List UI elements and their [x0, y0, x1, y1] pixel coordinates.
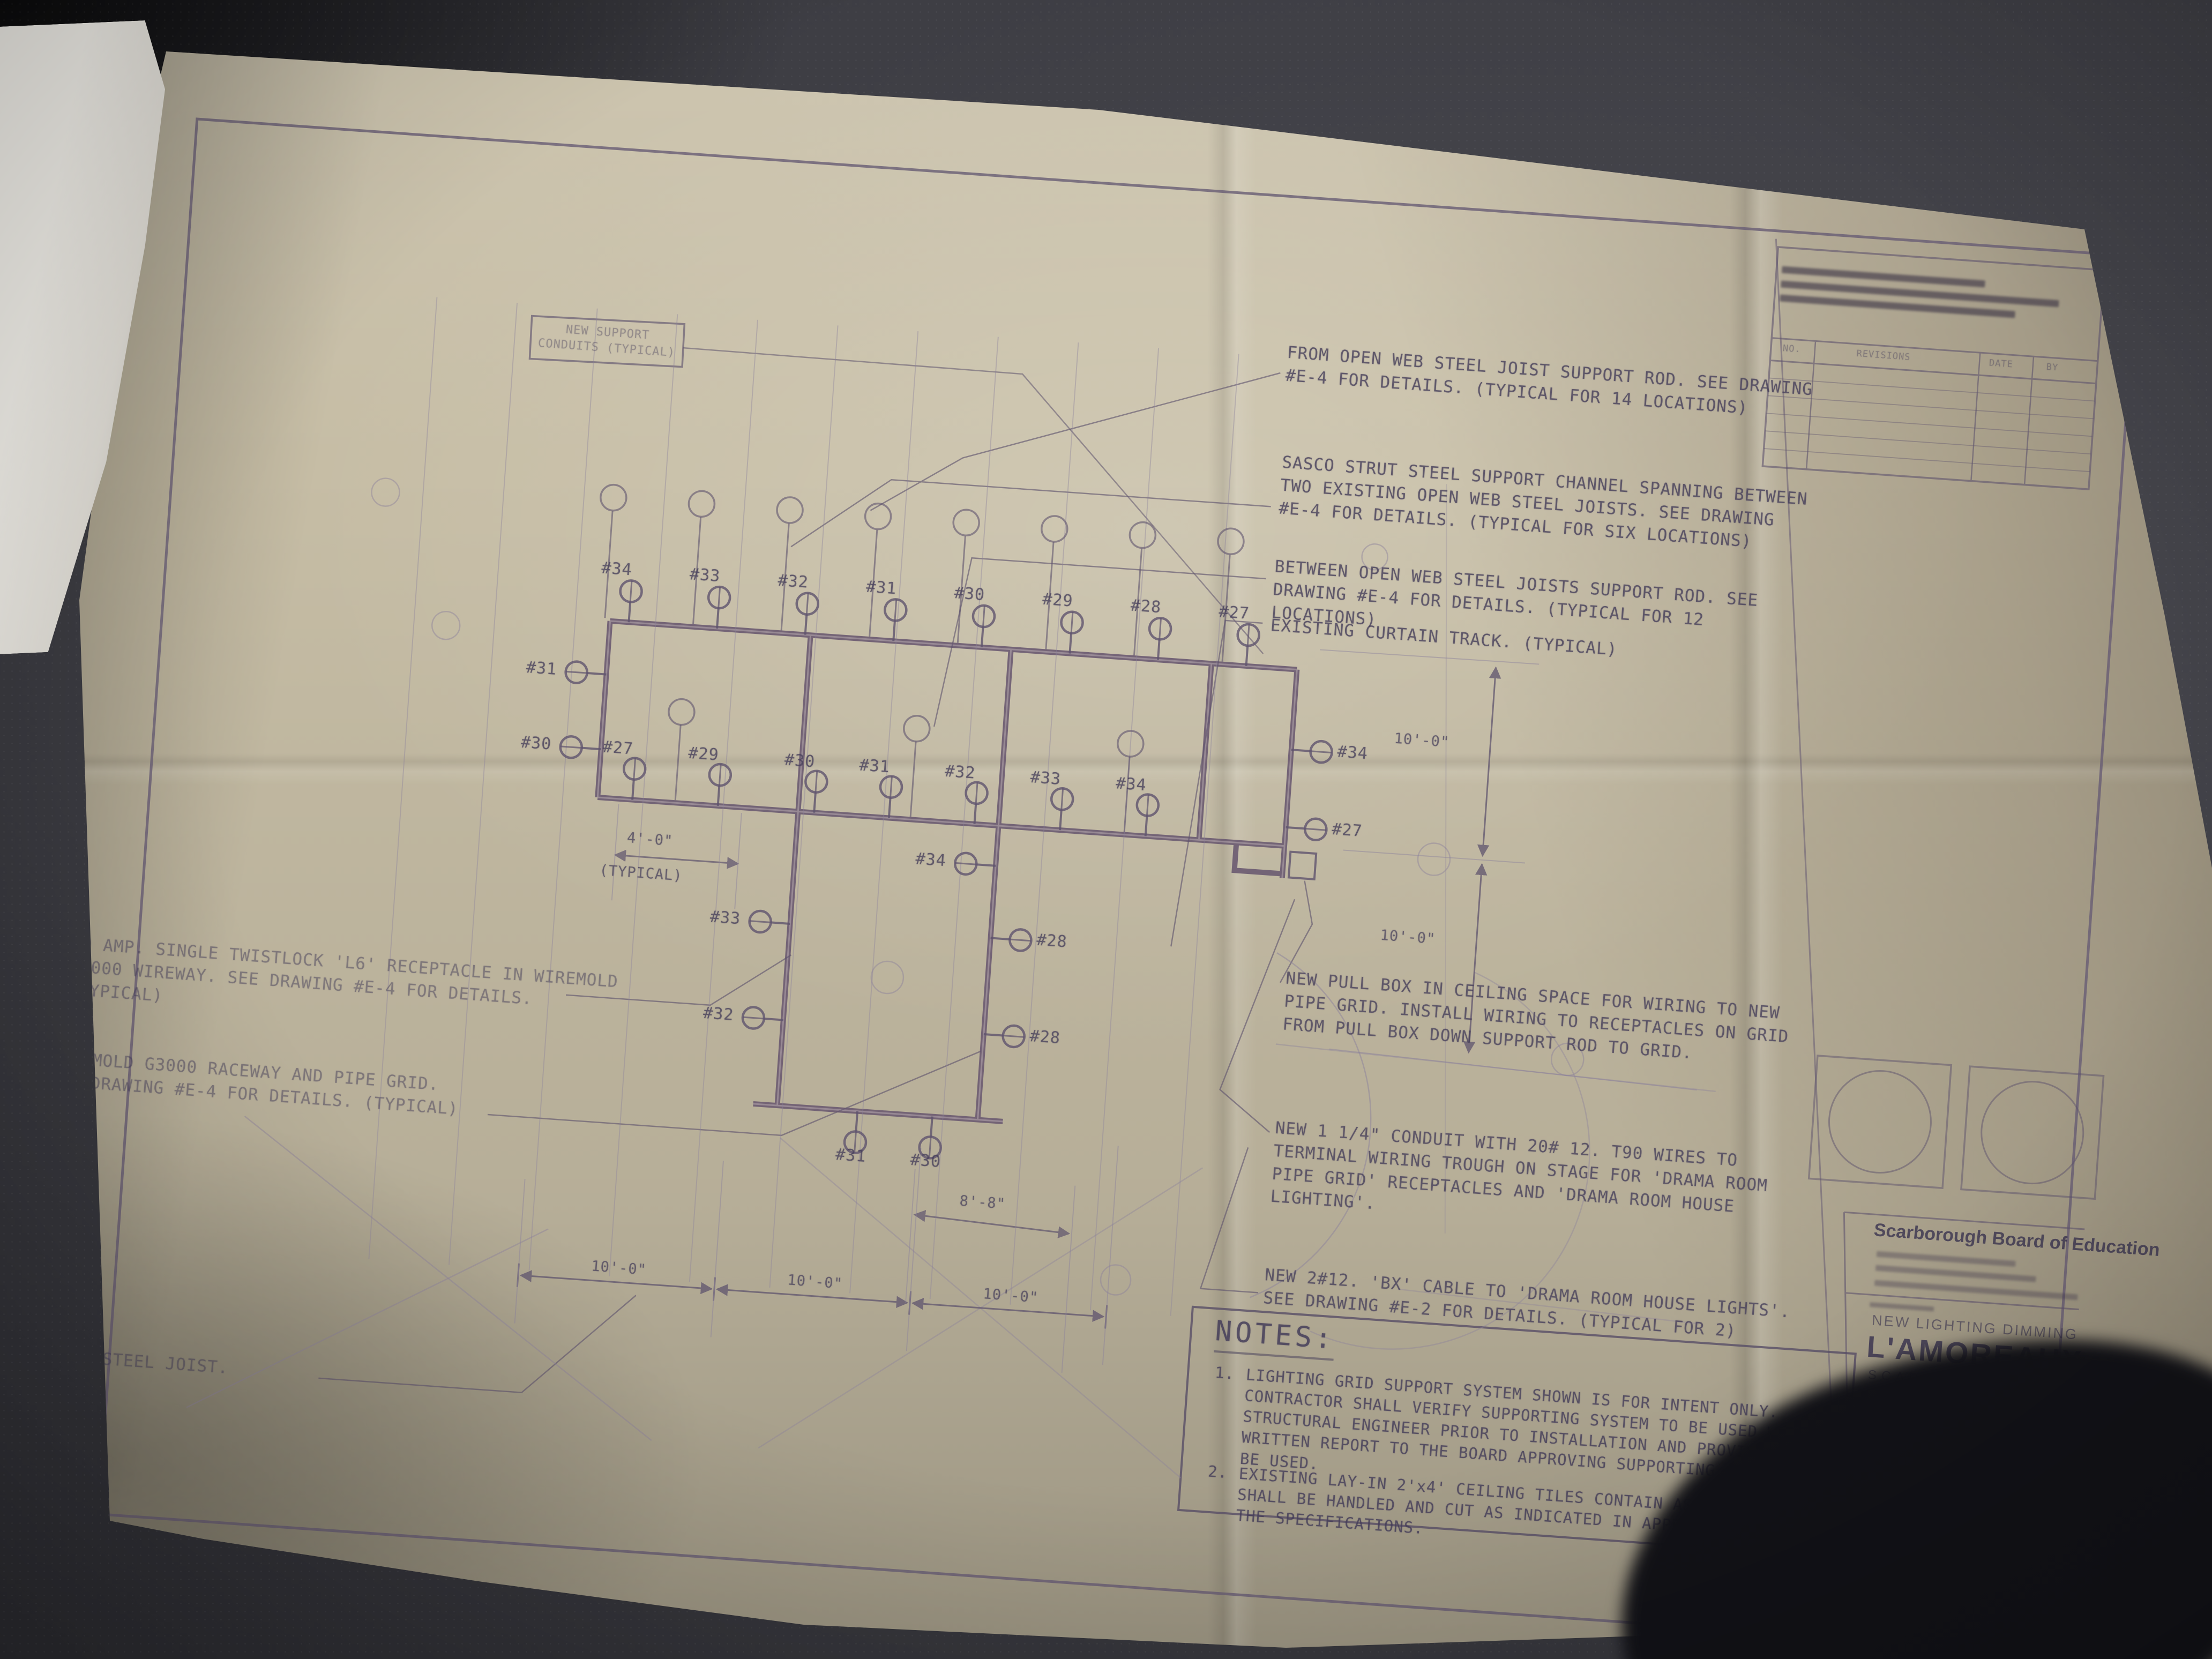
support-rod-top: [688, 490, 715, 518]
support-rod-top: [776, 496, 803, 524]
receptacle-stem: [632, 780, 634, 800]
receptacle-bar: [955, 863, 976, 864]
receptacle-stem: [1146, 816, 1147, 836]
support-rod-top: [1129, 521, 1156, 549]
receptacle-label: #30: [520, 733, 552, 754]
support-rod-top: [1217, 528, 1244, 555]
receptacle-bar: [1003, 1036, 1025, 1037]
receptacle-label: #32: [703, 1004, 735, 1025]
generated-plan-symbols: [318, 280, 2095, 1377]
receptacle-bar: [743, 1017, 764, 1019]
receptacle-stem: [982, 627, 983, 647]
receptacle-label: #28: [1029, 1027, 1062, 1048]
receptacle-bar: [750, 921, 771, 923]
receptacle-bar: [1160, 618, 1161, 639]
receptacle-stem: [582, 748, 601, 750]
receptacle-stem: [764, 1019, 783, 1020]
receptacle-stem: [814, 793, 816, 813]
joist-line: [690, 320, 758, 1282]
support-rod-top: [953, 509, 980, 536]
receptacle-label: #34: [1115, 774, 1147, 795]
receptacle-bar: [561, 746, 582, 748]
joist-line: [1171, 354, 1239, 1316]
receptacle-stem: [717, 608, 719, 629]
receptacle-label: #29: [1042, 590, 1074, 611]
receptacle-bar: [634, 758, 636, 780]
receptacle-stem: [771, 922, 790, 924]
support-rod-top: [668, 698, 695, 726]
receptacle-label: #33: [689, 565, 721, 586]
receptacle-label: #33: [709, 907, 742, 928]
receptacle-stem: [805, 615, 807, 635]
receptacle-bar: [1305, 828, 1326, 830]
revision-row-line: [1765, 431, 2091, 454]
fixture-circle: [431, 610, 461, 640]
receptacle-stem: [629, 602, 630, 622]
fixture-circle: [1100, 1264, 1132, 1296]
receptacle-label: #29: [687, 744, 720, 765]
joist-line: [769, 325, 838, 1288]
receptacle-label: #31: [865, 577, 898, 598]
receptacle-bar: [566, 671, 587, 673]
receptacle-label: #30: [910, 1150, 942, 1171]
receptacle-bar: [719, 764, 721, 786]
receptacle-stem: [889, 798, 891, 818]
stamp-boxes: [1809, 1056, 2104, 1199]
revision-column-header: BY: [2046, 362, 2059, 373]
receptacle-stem: [1246, 646, 1248, 666]
receptacle-bar: [1311, 751, 1332, 753]
pull-box-symbol: [1289, 852, 1316, 879]
receptacle-label: #30: [954, 584, 986, 604]
fixture-circle: [870, 960, 905, 995]
receptacle-bar: [630, 580, 632, 602]
receptacle-label: #32: [944, 762, 976, 783]
receptacle-label: #31: [526, 658, 558, 679]
receptacle-bar: [1010, 939, 1031, 941]
dim-grid-spacing: 4'-0": [626, 829, 674, 849]
receptacle-label: #34: [1336, 742, 1369, 763]
receptacle-stem: [975, 804, 976, 824]
receptacle-label: #31: [858, 756, 891, 776]
receptacle-stem: [991, 938, 1010, 939]
receptacle-bar: [983, 606, 985, 627]
joist-line: [529, 309, 597, 1271]
support-rod: [910, 742, 916, 817]
receptacle-stem: [931, 1117, 932, 1137]
support-rod: [675, 725, 681, 801]
receptacle-label: #30: [784, 751, 816, 772]
revision-row-line: [1764, 449, 2090, 472]
receptacle-bar: [719, 587, 720, 608]
dim-span: 8'-8": [959, 1193, 1006, 1213]
receptacle-bar: [1071, 612, 1073, 633]
receptacle-bar: [895, 599, 896, 621]
receptacle-bar: [1062, 788, 1063, 810]
receptacle-stem: [587, 673, 607, 675]
support-rod: [1124, 757, 1130, 832]
receptacle-label: #34: [915, 849, 947, 870]
support-rod-top: [1041, 515, 1068, 542]
note-number: 2.: [1207, 1461, 1229, 1484]
receptacle-label: #32: [777, 571, 809, 592]
revision-column-header: NO.: [1782, 343, 1801, 355]
receptacle-label: #28: [1130, 596, 1162, 617]
revision-column-header: DATE: [1989, 357, 2013, 370]
photo-scene: NEW SUPPORT CONDUITS (TYPICAL) FROM OPEN…: [0, 0, 2212, 1659]
receptacle-label: #27: [1331, 820, 1363, 841]
receptacle-bar: [806, 593, 808, 615]
receptacle-stem: [1286, 827, 1305, 829]
receptacle-stem: [1291, 750, 1311, 751]
joist-line: [609, 314, 677, 1276]
receptacle-stem: [856, 1111, 857, 1132]
receptacle-stem: [1158, 639, 1160, 660]
receptacle-bar: [816, 771, 817, 793]
support-rod-top: [903, 715, 930, 742]
fixture-circle: [371, 477, 401, 507]
pipe-grid: [577, 621, 1329, 1142]
receptacle-stem: [984, 1034, 1003, 1036]
receptacle-label: #34: [601, 558, 633, 579]
receptacle-stem: [976, 864, 996, 866]
joist-line: [1010, 342, 1078, 1305]
receptacle-bar: [1147, 795, 1148, 816]
receptacle-label: #27: [602, 737, 634, 758]
support-rod-top: [600, 484, 627, 511]
receptacle-bar: [976, 782, 977, 804]
receptacle-stem: [1070, 633, 1071, 654]
receptacle-bar: [1247, 624, 1249, 646]
receptacle-stem: [893, 621, 895, 641]
receptacle-label: #28: [1036, 931, 1068, 952]
receptacle-stem: [1060, 810, 1062, 830]
receptacle-bar: [891, 776, 892, 798]
receptacle-label: #27: [1218, 602, 1250, 623]
receptacle-label: #33: [1030, 768, 1062, 789]
receptacle-label: #31: [835, 1145, 867, 1166]
note-number: 1.: [1214, 1362, 1236, 1385]
receptacle-stem: [718, 786, 720, 806]
